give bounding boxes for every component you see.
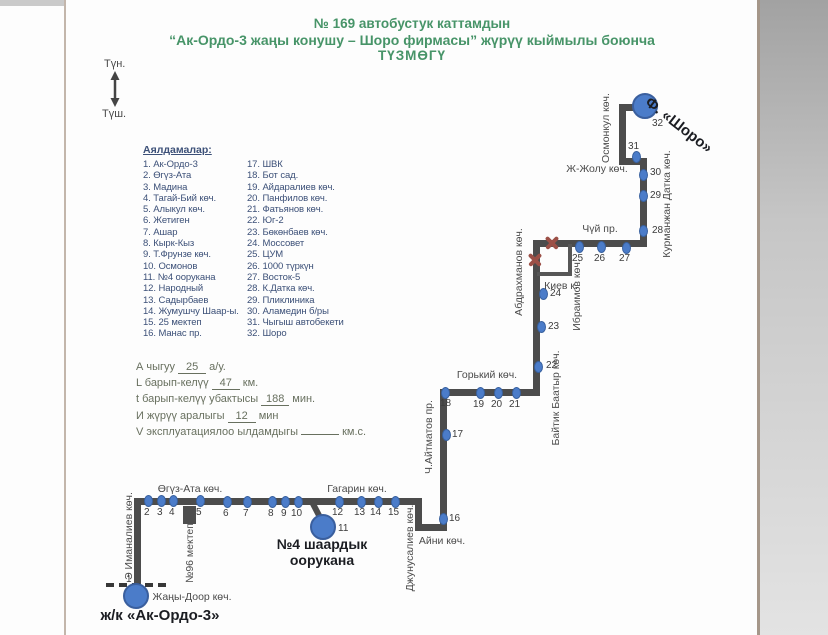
stop-dot-30 [639,169,648,181]
stop-dot-16 [439,513,448,525]
stat-line: t барып-келүү убактысы 188 мин. [136,391,366,407]
stop-number-2: 2 [144,507,150,518]
stop-number-11: 11 [338,523,348,534]
page-edge-right [757,0,760,635]
legend-item: 25. ЦУМ [247,249,367,260]
legend-item: 24. Моссовет [247,238,367,249]
stop-dot-26 [597,241,606,253]
stop-number-19: 19 [473,399,484,410]
legend-item: 21. Фатьянов көч. [247,204,367,215]
street-label: Абдрахманов көч. [513,228,525,316]
legend-item: 15. 25 мектеп [143,317,247,328]
street-label: Джунусалиев көч. [404,505,416,592]
street-label: №96 мектеп [184,523,196,583]
street-label: Айни көч. [419,535,465,547]
stop-number-5: 5 [196,507,202,518]
legend-item: 3. Мадина [143,182,247,193]
stop-number-21: 21 [509,399,520,410]
stop-number-8: 8 [268,508,274,519]
stop-number-17: 17 [452,429,463,440]
stops-legend: Аялдамалар: 1. Ак-Ордо-32. Өгүз-Ата3. Ма… [143,144,212,159]
compass-north-label: Түн. [104,58,125,70]
legend-item: 6. Жетиген [143,215,247,226]
stat-value: 25 [178,361,206,374]
street-label: Горький көч. [457,369,517,381]
title-line-1: № 169 автобустук каттамдын [67,16,757,32]
stop-dot-10 [294,496,303,508]
stop-number-23: 23 [548,321,559,332]
stop-number-16: 16 [449,513,460,524]
stop-dot-31 [632,151,641,163]
stat-line: И жүрүү аралыгы 12 мин [136,408,366,424]
street-label: Ибраимов көч. [571,259,583,330]
stop-number-20: 20 [491,399,502,410]
page-edge-left [64,0,66,635]
stop-dot-21 [512,387,521,399]
stop-dot-9 [281,496,290,508]
hospital-label-line2: оорукана [252,552,392,568]
stop-dot-6 [223,496,232,508]
stop-dot-23 [537,321,546,333]
legend-item: 11. №4 оорукана [143,272,247,283]
legend-item: 14. Жумушчу Шаар-ы. [143,306,247,317]
stop-number-13: 13 [354,507,365,518]
stop-number-18: 18 [440,398,451,409]
diagram-title: № 169 автобустук каттамдын “Ак-Ордо-3 жа… [67,16,757,64]
photo-margin-right [760,0,828,635]
legend-column-1: 1. Ак-Ордо-32. Өгүз-Ата3. Мадина4. Тагай… [143,159,247,340]
title-line-3: ТҮЗМӨГҮ [67,48,757,64]
stop-dot-5 [196,495,205,507]
street-label: Байтик Баатыр көч. [550,350,562,445]
stop-dot-19 [476,387,485,399]
stop-dot-17 [442,429,451,441]
legend-item: 31. Чыгыш автобекети [247,317,367,328]
street-label: Осмонкул көч. [600,93,612,163]
legend-item: 13. Садырбаев [143,295,247,306]
stop-number-9: 9 [281,508,287,519]
legend-item: 17. ШВК [247,159,367,170]
legend-item: 20. Панфилов көч. [247,193,367,204]
stat-value [301,434,339,435]
legend-item: 18. Бот сад. [247,170,367,181]
school-96-building [183,506,196,524]
stop-dot-3 [157,495,166,507]
closed-route-x-icon [527,252,543,268]
legend-item: 29. Пликлиника [247,295,367,306]
legend-item: 16. Манас пр. [143,328,247,339]
stop-number-4: 4 [169,507,175,518]
street-label: Ч.Айтматов пр. [423,400,435,474]
legend-item: 12. Народный [143,283,247,294]
closed-route-x-icon [544,235,560,251]
stop-dot-7 [243,496,252,508]
closed-detour-bottom [537,272,572,276]
title-line-2: “Ак-Ордо-3 жаңы конушу – Шоро фирмасы” ж… [67,32,757,48]
stop-number-27: 27 [619,253,630,264]
stop-dot-22 [534,361,543,373]
route-stats: А чыгуу 25 а/у.L барып-келүү 47 км.t бар… [136,359,366,440]
route-segment-osmonkul-vertical [619,104,626,165]
stop-dot-1 [123,583,149,609]
street-label: Гагарин көч. [327,483,387,495]
stat-value: 12 [228,410,256,423]
legend-column-2: 17. ШВК18. Бот сад.19. Айдаралиев көч.20… [247,159,367,340]
stop-number-6: 6 [223,508,229,519]
photo-corner-shade [0,0,64,6]
stat-value: 47 [212,377,240,390]
stop-dot-29 [639,190,648,202]
stop-dot-8 [268,496,277,508]
legend-item: 8. Кырк-Кыз [143,238,247,249]
legend-item: 4. Тагай-Бий көч. [143,193,247,204]
stat-line: А чыгуу 25 а/у. [136,359,366,375]
stop-dot-28 [639,225,648,237]
route-segment-imanaliev-vertical [134,498,141,593]
stop-number-14: 14 [370,507,381,518]
stop-number-7: 7 [243,508,249,519]
legend-item: 1. Ак-Ордо-3 [143,159,247,170]
legend-header: Аялдамалар: [143,144,212,156]
stop-dot-25 [575,241,584,253]
legend-item: 10. Осмонов [143,261,247,272]
stop-dot-4 [169,495,178,507]
terminus-akordo-label: ж/к «Ак-Ордо-3» [60,607,260,624]
stat-line: L барып-келүү 47 км. [136,375,366,391]
stop-number-12: 12 [332,507,343,518]
stop-number-15: 15 [388,507,399,518]
street-label: Жаңы-Доор көч. [153,591,232,603]
stop-number-30: 30 [650,167,661,178]
stop-number-29: 29 [650,190,661,201]
legend-item: 22. Юг-2 [247,215,367,226]
hospital-label-line1: №4 шаардык [252,536,392,552]
legend-item: 26. 1000 түркүн [247,261,367,272]
stat-value: 188 [261,393,289,406]
street-label: Өгүз-Ата көч. [158,483,223,495]
street-label: Э Иманалиев көч. [123,492,135,580]
legend-item: 2. Өгүз-Ата [143,170,247,181]
stat-line: V эксплуатациялоо ылдамдыгы км.с. [136,424,366,440]
stop-number-10: 10 [291,508,302,519]
legend-item: 9. Т.Фрунзе көч. [143,249,247,260]
legend-item: 19. Айдаралиев көч. [247,182,367,193]
legend-item: 30. Аламедин б/ры [247,306,367,317]
street-label: Чүй пр. [582,223,617,235]
compass-arrow-icon [108,71,122,107]
route-segment-aitmatov-vertical [440,389,447,531]
legend-item: 27. Восток-5 [247,272,367,283]
legend-item: 23. Бөкөнбаев көч. [247,227,367,238]
route-diagram-page: № 169 автобустук каттамдын “Ак-Ордо-3 жа… [0,0,828,635]
street-label: Курманжан Датка көч. [661,150,673,257]
legend-item: 32. Шоро [247,328,367,339]
legend-item: 28. К.Датка көч. [247,283,367,294]
route-segment-gorky-horizontal [440,389,540,396]
stop-number-3: 3 [157,507,163,518]
stop-number-26: 26 [594,253,605,264]
stop-dot-20 [494,387,503,399]
compass-south-label: Түш. [102,108,126,120]
legend-item: 5. Алыкул көч. [143,204,247,215]
street-label: Ж-Жолу көч. [566,163,628,175]
stop-dot-2 [144,495,153,507]
legend-item: 7. Ашар [143,227,247,238]
stop-number-31: 31 [628,141,639,152]
hospital-label: №4 шаардык оорукана [252,536,392,568]
